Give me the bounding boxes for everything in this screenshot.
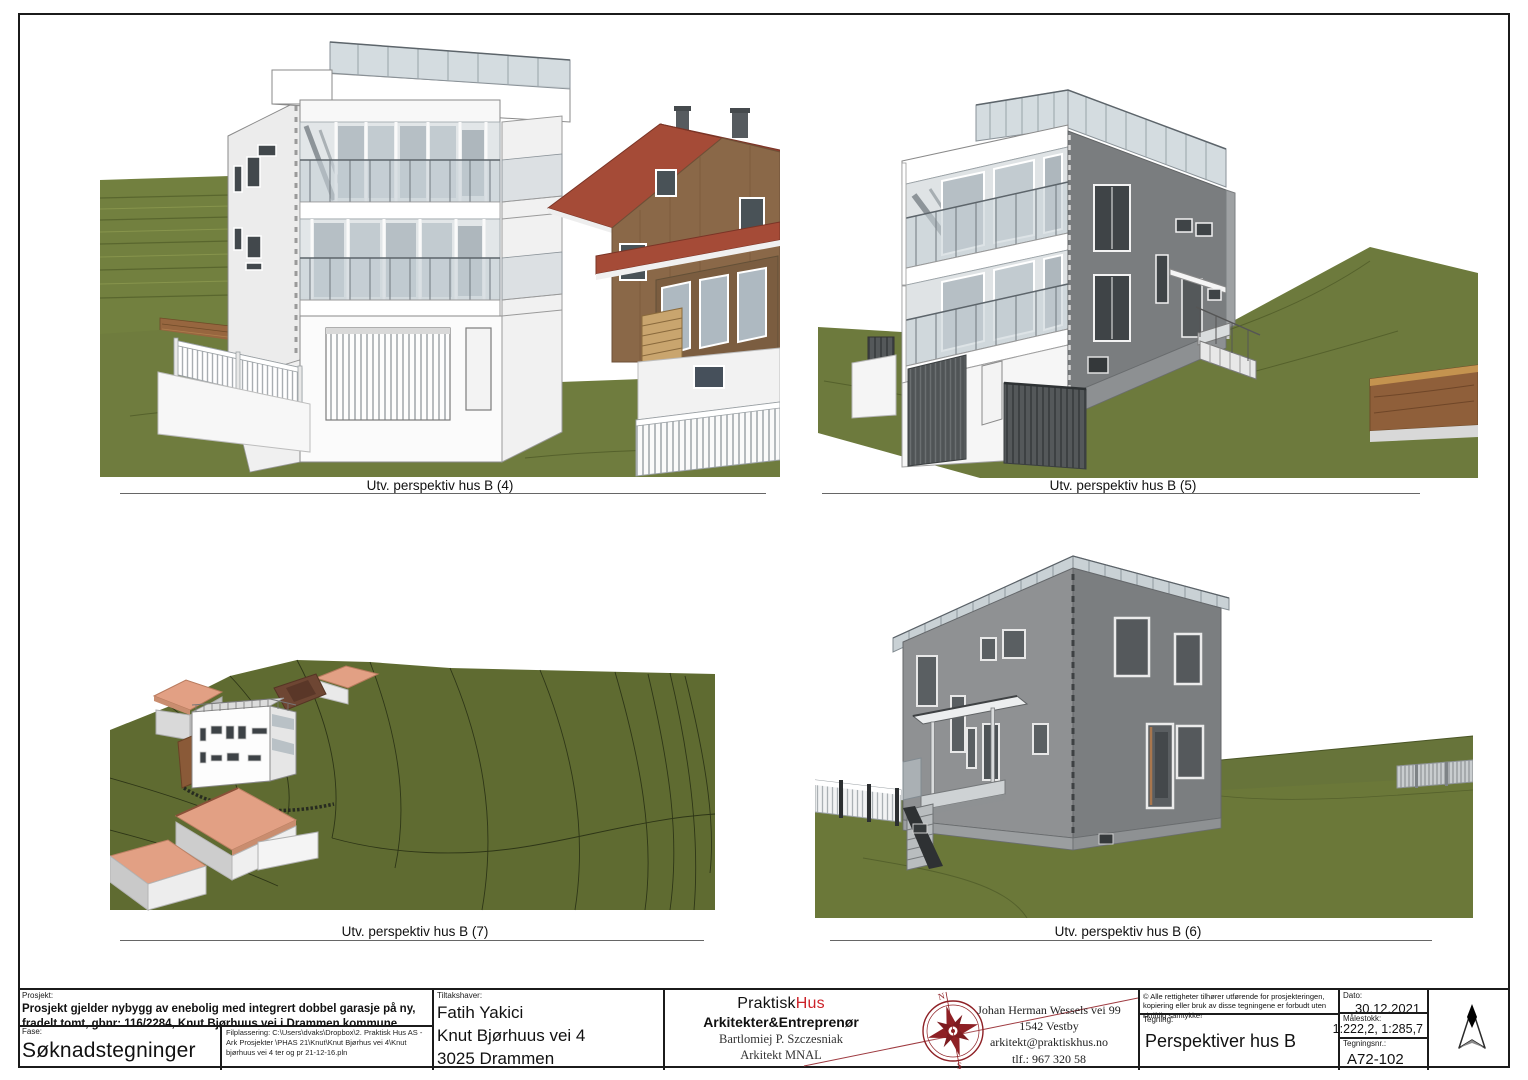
contact-email: arkitekt@praktiskhus.no [959, 1034, 1139, 1050]
figure-caption: Utv. perspektiv hus B (5) [818, 478, 1428, 493]
tegningsnr-label: Tegningsnr.: [1339, 1038, 1427, 1049]
tegning-label: Tegning: [1139, 1014, 1338, 1025]
main-house [893, 556, 1229, 870]
tegningsnr-value: A72-102 [1339, 1049, 1427, 1068]
dato-label: Dato: [1339, 990, 1427, 1001]
contact-address-2: 1542 Vestby [959, 1018, 1139, 1034]
prosjekt-label: Prosjekt: [18, 990, 432, 1001]
tegning-value: Perspektiver hus B [1139, 1025, 1338, 1052]
dark-fence [1004, 383, 1086, 469]
caption-underline [822, 493, 1420, 494]
firm-name: PraktiskHus [670, 995, 892, 1013]
firm-cell: N S PraktiskHus Arkitekter&Entreprenør B… [664, 990, 1138, 1070]
subject-house [192, 698, 296, 788]
entrance-door [466, 328, 491, 410]
project-cell: Prosjekt: Prosjekt gjelder nybygg av ene… [18, 990, 432, 1070]
figure-caption: Utv. perspektiv hus B (6) [822, 924, 1434, 939]
basement-door [982, 361, 1002, 425]
architect-name: Bartlomiej P. Szczesniak [670, 1032, 892, 1048]
drawing-sheet: Utv. perspektiv hus B (4) [0, 0, 1528, 1080]
tegning-cell: © Alle rettigheter tilhører utførende fo… [1139, 990, 1338, 1070]
contact-phone: tlf.: 967 320 58 [959, 1051, 1139, 1067]
tiltakshaver-name: Fatih Yakici [437, 1002, 663, 1025]
malestokk-value: 1:222,2, 1:285,7 [1333, 1022, 1423, 1036]
tegningsnr-cell: Tegningsnr.: A72-102 [1339, 1038, 1427, 1070]
tiltakshaver-cell: Tiltakshaver: Fatih Yakici Knut Bjørhuus… [433, 990, 663, 1070]
architect-title: Arkitekt MNAL [670, 1048, 892, 1064]
caption-underline [830, 940, 1432, 941]
tiltakshaver-address-1: Knut Bjørhuus vei 4 [437, 1025, 663, 1048]
compass-north-label: N [937, 990, 946, 1001]
render-hus-b-4 [100, 30, 780, 477]
fase-value: Søknadstegninger [18, 1037, 220, 1063]
render-hus-b-5 [818, 35, 1478, 478]
filplassering: Filplassering: C:\Users\dvaks\Dropbox\2.… [222, 1026, 436, 1057]
render-hus-b-7 [110, 618, 715, 918]
dato-cell: Dato: 30.12.2021 [1339, 990, 1427, 1012]
figure-caption: Utv. perspektiv hus B (7) [110, 924, 720, 939]
garage-door [326, 328, 450, 420]
garage-door [908, 355, 966, 466]
caption-underline [120, 493, 766, 494]
tiltakshaver-label: Tiltakshaver: [433, 990, 663, 1001]
meta-cell: Dato: 30.12.2021 Målestokk: 1:222,2, 1:2… [1339, 990, 1427, 1070]
north-arrow-cell [1428, 990, 1510, 1070]
render-hus-b-6 [815, 528, 1473, 918]
retaining-wall-brown [1370, 365, 1478, 442]
title-block: Prosjekt: Prosjekt gjelder nybygg av ene… [18, 988, 1510, 1068]
fase-label: Fase: [18, 1026, 220, 1037]
north-arrow-icon [1452, 1002, 1492, 1058]
fase-cell: Fase: Søknadstegninger [18, 1026, 220, 1063]
figure-caption: Utv. perspektiv hus B (4) [100, 478, 780, 493]
contact-address-1: Johan Herman Wessels vei 99 [959, 1002, 1139, 1018]
malestokk-cell: Målestokk: 1:222,2, 1:285,7 [1339, 1013, 1427, 1037]
caption-underline [120, 940, 704, 941]
firm-tagline: Arkitekter&Entreprenør [670, 1014, 892, 1030]
tiltakshaver-address-2: 3025 Drammen [437, 1048, 663, 1071]
